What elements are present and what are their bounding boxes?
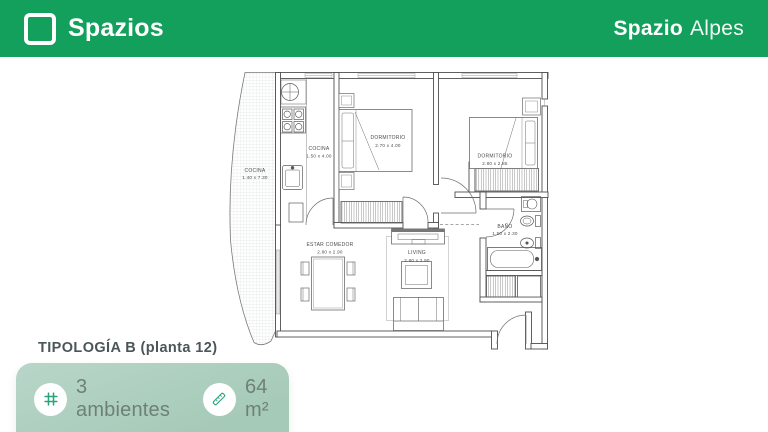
- svg-text:ESTAR COMEDOR: ESTAR COMEDOR: [306, 242, 353, 248]
- room-label-dining: ESTAR COMEDOR 2.80 x 2.90: [306, 242, 353, 255]
- area-badge: 64 m²: [203, 376, 289, 422]
- washbasin: [522, 197, 541, 212]
- svg-text:DORMITORIO: DORMITORIO: [478, 154, 513, 160]
- summary-card: 3 ambientes 64 m²: [16, 363, 289, 432]
- ruler-icon: [203, 383, 236, 416]
- dining-table: [301, 257, 355, 310]
- bed-double: [339, 94, 412, 190]
- hash-icon: [34, 383, 67, 416]
- svg-text:1.50 x 4.00: 1.50 x 4.00: [306, 154, 332, 159]
- project-name-light: Alpes: [690, 17, 744, 41]
- typology-title: TIPOLOGÍA B (planta 12): [38, 340, 217, 356]
- svg-text:COCINA: COCINA: [309, 146, 330, 152]
- svg-text:LIVING: LIVING: [408, 250, 426, 256]
- area-label: 64 m²: [245, 376, 289, 422]
- svg-text:DORMITORIO: DORMITORIO: [371, 135, 406, 141]
- coffee-table: [402, 262, 432, 289]
- page: Spazios Spazio Alpes: [0, 0, 768, 432]
- svg-text:2.80 x 2.90: 2.80 x 2.90: [317, 250, 343, 255]
- room-label-living: LIVING 2.80 x 2.90: [404, 250, 430, 263]
- kitchen-appliances: [281, 79, 307, 222]
- floor-plan: COCINA 1.40 x 7.30 COCINA 1.50 x 4.00 DO…: [220, 58, 560, 358]
- svg-text:1.40 x 7.30: 1.40 x 7.30: [242, 175, 268, 180]
- svg-text:COCINA: COCINA: [245, 168, 266, 174]
- room-label-kitchen: COCINA 1.50 x 4.00: [306, 146, 332, 159]
- sofa: [394, 298, 444, 331]
- room-label-bathroom: BAÑO 1.50 x 2.30: [492, 223, 518, 236]
- svg-text:BAÑO: BAÑO: [497, 223, 512, 230]
- brand-name: Spazios: [68, 14, 164, 43]
- svg-text:1.50 x 2.30: 1.50 x 2.30: [492, 231, 518, 236]
- rooms-badge: 3 ambientes: [34, 376, 174, 422]
- stove-burners: [283, 109, 304, 132]
- toilet: [521, 216, 541, 227]
- bidet: [521, 238, 541, 249]
- living-furniture: [387, 229, 449, 331]
- kitchen-sink: [283, 166, 303, 190]
- tv-console: [392, 229, 445, 245]
- svg-text:2.80 x 2.85: 2.80 x 2.85: [482, 161, 508, 166]
- app-header: Spazios Spazio Alpes: [0, 0, 768, 57]
- dishwasher: [289, 203, 303, 222]
- project-name-bold: Spazio: [613, 17, 682, 41]
- bathtub: [488, 248, 542, 271]
- svg-text:2.70 x 4.00: 2.70 x 4.00: [375, 143, 401, 148]
- balcony-area: [230, 73, 276, 345]
- spazios-logo-icon: [24, 13, 56, 45]
- svg-text:2.80 x 2.90: 2.80 x 2.90: [404, 258, 430, 263]
- summary-card-row: 3 ambientes 64 m²: [16, 363, 289, 422]
- floor-plan-drawing: COCINA 1.40 x 7.30 COCINA 1.50 x 4.00 DO…: [220, 58, 560, 358]
- rooms-count-label: 3 ambientes: [76, 376, 174, 422]
- project-name: Spazio Alpes: [613, 17, 744, 41]
